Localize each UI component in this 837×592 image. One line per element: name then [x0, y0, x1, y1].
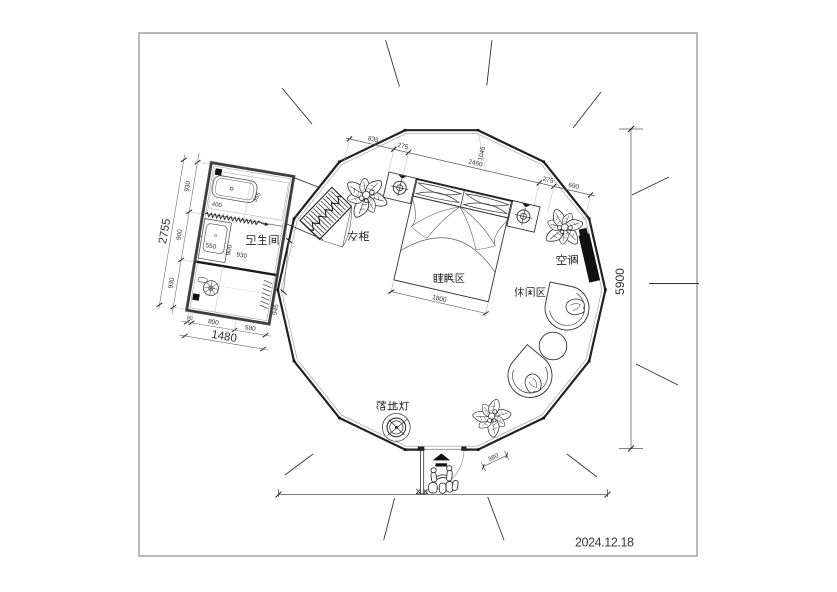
svg-text:5900: 5900 [613, 268, 627, 295]
svg-text:2024.12.18: 2024.12.18 [575, 536, 634, 550]
